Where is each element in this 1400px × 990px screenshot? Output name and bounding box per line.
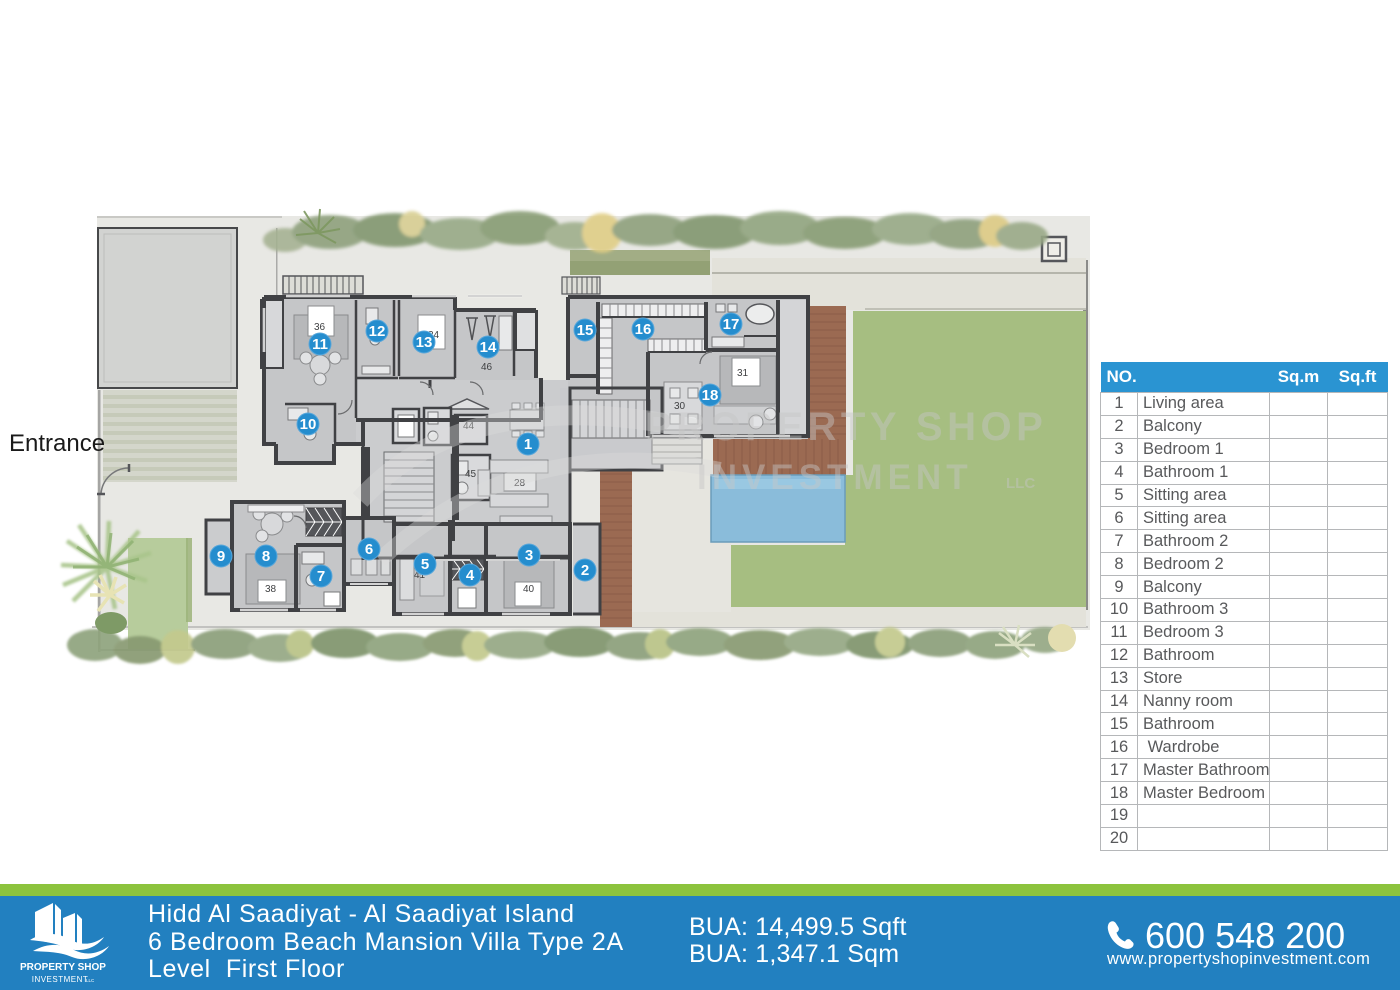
svg-text:8: 8 — [262, 548, 270, 565]
svg-text:3: 3 — [525, 547, 533, 564]
svg-text:INVESTMENT: INVESTMENT — [697, 458, 973, 497]
svg-text:5: 5 — [421, 556, 429, 573]
svg-text:17: 17 — [723, 316, 740, 333]
svg-text:12: 12 — [369, 323, 386, 340]
svg-text:LLC: LLC — [1006, 475, 1035, 492]
svg-text:LLC: LLC — [86, 978, 95, 983]
svg-text:18: 18 — [702, 387, 719, 404]
svg-text:14: 14 — [480, 339, 497, 356]
svg-text:40: 40 — [523, 584, 535, 595]
svg-text:45: 45 — [465, 469, 477, 480]
svg-text:13: 13 — [416, 334, 433, 351]
svg-text:46: 46 — [481, 362, 493, 373]
svg-text:15: 15 — [577, 322, 594, 339]
svg-text:4: 4 — [466, 567, 475, 584]
svg-text:31: 31 — [737, 368, 749, 379]
svg-text:1: 1 — [524, 436, 532, 453]
svg-text:38: 38 — [265, 584, 277, 595]
svg-text:36: 36 — [314, 322, 326, 333]
svg-text:6: 6 — [365, 541, 373, 558]
svg-text:PROPERTY SHOP: PROPERTY SHOP — [645, 405, 1047, 449]
svg-text:11: 11 — [312, 336, 328, 353]
svg-text:PROPERTY SHOP: PROPERTY SHOP — [20, 962, 106, 973]
svg-text:9: 9 — [217, 548, 225, 565]
svg-text:INVESTMENT: INVESTMENT — [32, 975, 89, 984]
svg-text:7: 7 — [317, 568, 325, 585]
svg-text:10: 10 — [300, 416, 317, 433]
svg-text:2: 2 — [581, 562, 589, 579]
svg-text:16: 16 — [635, 321, 652, 338]
